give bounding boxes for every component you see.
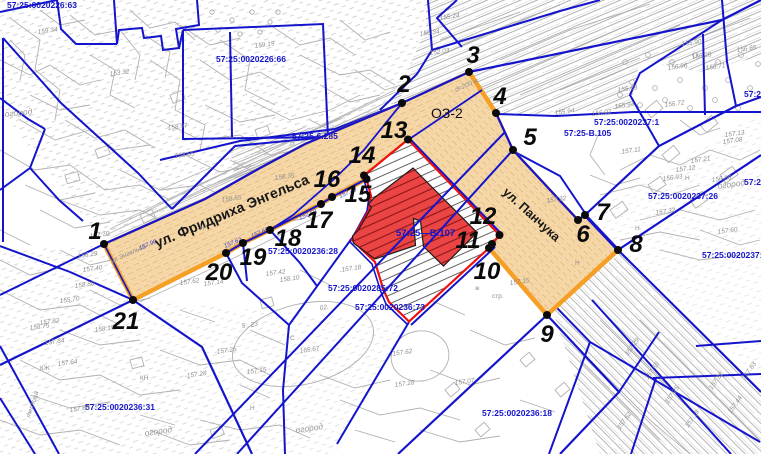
svg-text:57:25:0020236:31: 57:25:0020236:31 [85,402,155,412]
svg-text:КЖ: КЖ [40,365,50,372]
svg-text:С: С [290,335,295,342]
svg-text:11: 11 [456,227,481,254]
svg-text:3: 3 [466,42,480,69]
svg-text:21: 21 [112,308,140,335]
svg-text:12: 12 [470,203,497,230]
svg-text:16: 16 [314,166,341,193]
svg-text:Н: Н [685,175,690,182]
svg-text:57:25:0020237:26: 57:25:0020237:26 [648,191,718,201]
svg-text:02.: 02. [319,304,329,312]
svg-text:15: 15 [345,181,372,208]
svg-text:14: 14 [349,142,376,169]
svg-text:19: 19 [240,244,267,271]
svg-text:Н: Н [200,225,205,232]
svg-text:57:25—В.107: 57:25—В.107 [396,228,455,239]
svg-text:4: 4 [492,83,506,110]
svg-text:57:25:0020226:63: 57:25:0020226:63 [7,0,77,10]
svg-text:57:25:0020237:2: 57:25:0020237:2 [702,250,761,260]
svg-text:57:25-В.105: 57:25-В.105 [564,128,612,138]
svg-text:Н: Н [290,140,295,147]
svg-text:7: 7 [596,199,611,226]
svg-text:стр.: стр. [492,293,504,300]
svg-text:9: 9 [540,321,554,348]
svg-text:57:25:0020237:1: 57:25:0020237:1 [594,117,659,127]
svg-text:ОЗ-2: ОЗ-2 [431,105,463,121]
svg-text:57:25-6.285: 57:25-6.285 [292,131,338,141]
svg-text:13: 13 [381,117,408,144]
svg-text:57:25:0020226:66: 57:25:0020226:66 [216,54,286,64]
svg-text:57:25:0020236:18: 57:25:0020236:18 [482,408,552,418]
svg-text:18: 18 [275,225,302,252]
svg-text:20: 20 [205,259,233,286]
svg-text:Н: Н [575,260,580,267]
svg-text:17: 17 [306,207,334,234]
svg-text:КН: КН [140,375,149,382]
svg-text:8: 8 [629,231,643,258]
svg-text:5: 5 [523,124,537,151]
svg-text:57:25:0020236:73: 57:25:0020236:73 [355,302,425,312]
svg-text:10: 10 [474,258,501,285]
svg-text:ж: ж [475,285,480,292]
svg-text:57:25:0020285:72: 57:25:0020285:72 [328,283,398,293]
svg-text:2: 2 [396,71,411,98]
svg-text:1: 1 [88,218,101,245]
svg-text:Н: Н [250,405,255,412]
svg-text:57:2: 57:2 [744,177,761,187]
svg-text:57:25: 57:25 [744,89,761,99]
svg-text:6: 6 [576,221,590,248]
